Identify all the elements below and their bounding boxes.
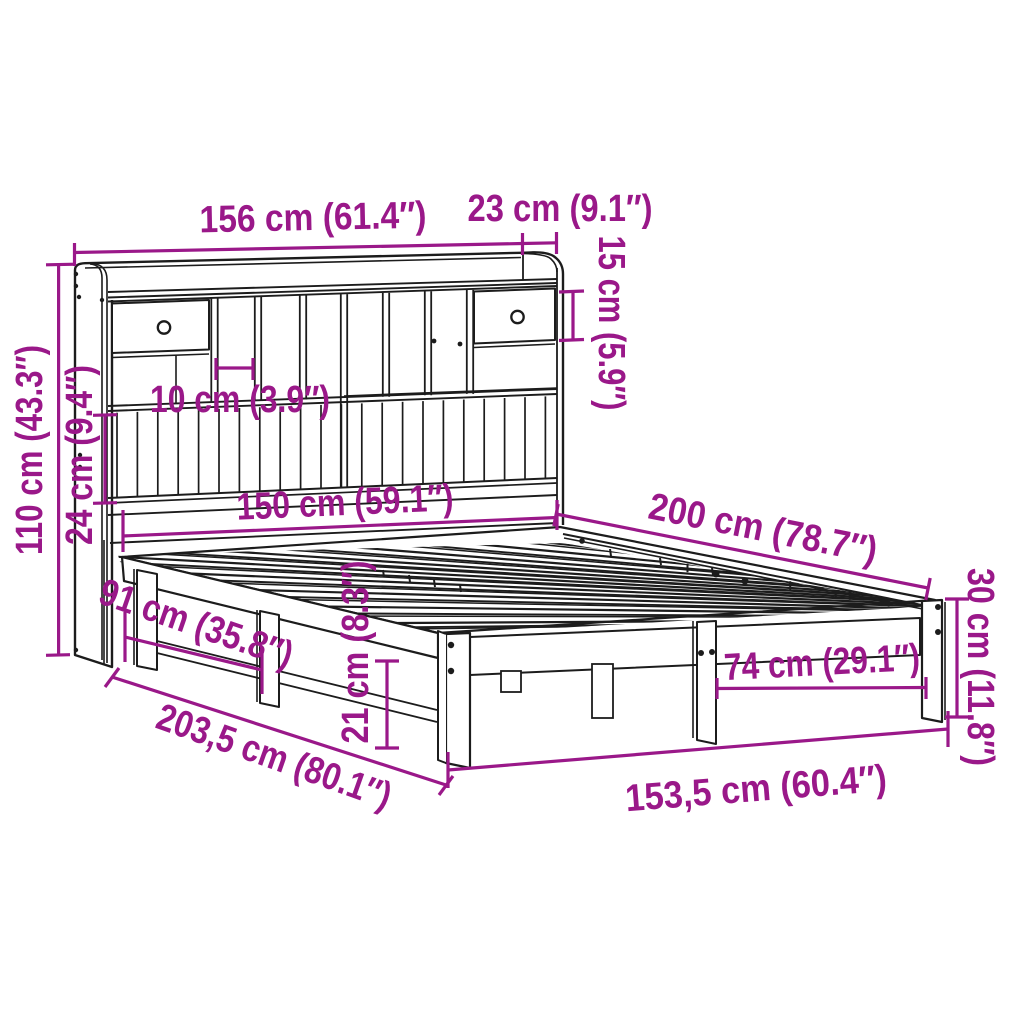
svg-text:15 cm (5.9″): 15 cm (5.9″) [590, 236, 632, 411]
svg-text:24 cm (9.4″): 24 cm (9.4″) [59, 365, 101, 545]
svg-text:23 cm (9.1″): 23 cm (9.1″) [468, 188, 653, 230]
svg-text:110 cm (43.3″): 110 cm (43.3″) [9, 345, 51, 555]
svg-text:30 cm (11.8″): 30 cm (11.8″) [959, 568, 1001, 766]
svg-text:156 cm (61.4″): 156 cm (61.4″) [199, 195, 427, 242]
svg-text:21 cm (8.3″): 21 cm (8.3″) [335, 561, 377, 744]
svg-text:10 cm (3.9″): 10 cm (3.9″) [150, 379, 330, 421]
